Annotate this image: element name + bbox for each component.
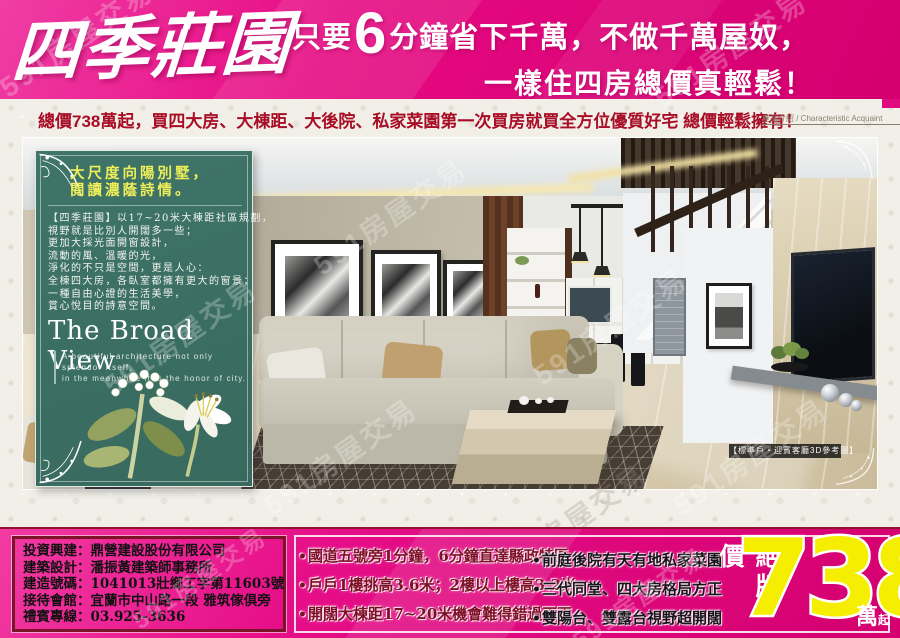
small-photo-frame xyxy=(706,283,752,349)
teacup xyxy=(547,397,554,403)
footer-band: 投資興建：鼎營建設股份有限公司 建築設計：潘振黃建築師事務所 建造號碼：1041… xyxy=(0,527,900,638)
company-line: 投資興建：鼎營建設股份有限公司 xyxy=(23,543,275,560)
company-line: 建造號碼：1041013壯鄉工字第11603號 xyxy=(23,576,275,593)
teacup xyxy=(535,398,542,404)
plant-bowl xyxy=(771,362,809,372)
project-title: 四季莊園 xyxy=(9,0,300,99)
body-line: 更加大採光面開窗設計， xyxy=(48,238,273,251)
body-line: 一種自由心證的生活美學， xyxy=(48,289,273,302)
pendant-lamp xyxy=(601,208,603,266)
body-line: 全棟四大房，各臥室都擁有更大的窗景； xyxy=(48,276,273,289)
flower-illustration xyxy=(56,369,236,481)
slogan-line2: 一樣住四房總價真輕鬆！ xyxy=(292,62,814,99)
sofa-pillow xyxy=(530,329,573,372)
unit-qi: 起 xyxy=(878,613,890,627)
big-number-6: 6 xyxy=(352,1,389,66)
body-line: 賞心悅目的詩意空間。 xyxy=(48,301,273,314)
bullet-icon: • xyxy=(298,549,307,565)
feature-item: •雙陽台、雙露台視野超開闊 xyxy=(532,604,722,633)
decor-sphere xyxy=(821,384,839,402)
panel-headline-line1: 大尺度向陽別墅， xyxy=(70,165,210,182)
photo-art xyxy=(715,293,743,339)
subheader-bar: 總價738萬起，買四大房、大棟距、大後院、私家菜園第一次買房就買全方位優質好宅 … xyxy=(0,99,900,136)
bullet-icon: • xyxy=(532,553,541,569)
company-info-box: 投資興建：鼎營建設股份有限公司 建築設計：潘振黃建築師事務所 建造號碼：1041… xyxy=(12,536,286,632)
subheader-text: 總價738萬起，買四大房、大棟距、大後院、私家菜園第一次買房就買全方位優質好宅 … xyxy=(38,107,802,132)
panel-divider xyxy=(48,205,242,206)
ad-page: 四季莊園 只要6分鐘省下千萬，不做千萬屋奴， 一樣住四房總價真輕鬆！ 總價738… xyxy=(0,0,900,638)
shelf-bottle xyxy=(535,284,540,298)
company-line: 接待會館：宜蘭市中山路一段 雅筑傢俱旁 xyxy=(23,593,275,610)
unit-wan: 萬 xyxy=(856,604,878,630)
corner-flourish-icon xyxy=(835,140,875,180)
body-line: 視野就是比別人開闊多一些； xyxy=(48,226,273,239)
bullet-icon: • xyxy=(298,607,307,623)
plant-leaf xyxy=(795,348,809,359)
panel-headline: 大尺度向陽別墅， 閱讀濃蔭詩情。 xyxy=(70,165,210,199)
shelf-plant xyxy=(515,256,529,265)
company-line: 建築設計：潘振黃建築師事務所 xyxy=(23,560,275,577)
coffee-table xyxy=(452,410,616,484)
body-line: 淨化的不只是空間，更是人心： xyxy=(48,263,273,276)
bullet-icon: • xyxy=(532,582,541,598)
pendant-lamp xyxy=(579,208,581,252)
slogan-line1: 只要6分鐘省下千萬，不做千萬屋奴， xyxy=(292,14,814,56)
phone-line: 禮賓專線：03.925-3636 xyxy=(23,609,275,626)
feature-item: •三代同堂、四大房格局方正 xyxy=(532,575,722,604)
bullet-icon: • xyxy=(298,578,307,594)
section-label: 產品介紹 / Characteristic Acquaint xyxy=(762,113,900,125)
photo-caption: 【標準戶‧迎賓客廳3D參考圖】 xyxy=(729,444,841,458)
teapot xyxy=(519,396,529,405)
slogan: 只要6分鐘省下千萬，不做千萬屋奴， 一樣住四房總價真輕鬆！ xyxy=(292,14,814,99)
hero-section: 【標準戶‧迎賓客廳3D參考圖】 大尺度向陽別墅， 閱讀濃蔭詩情。 xyxy=(0,136,900,527)
feature-panel: 大尺度向陽別墅， 閱讀濃蔭詩情。 【四季莊園】以17~20米大棟距社區規劃， 視… xyxy=(35,150,253,487)
price-unit: 萬起 xyxy=(856,599,890,631)
decor-sphere xyxy=(851,400,862,411)
feature-item: •前庭後院有天有地私家菜園 xyxy=(532,546,722,575)
corner-notch xyxy=(882,99,900,108)
body-line: 【四季莊園】以17~20米大棟距社區規劃， xyxy=(48,213,273,226)
masthead: 四季莊園 只要6分鐘省下千萬，不做千萬屋奴， 一樣住四房總價真輕鬆！ xyxy=(0,0,900,99)
bullet-icon: • xyxy=(532,611,541,627)
panel-body-text: 【四季莊園】以17~20米大棟距社區規劃， 視野就是比別人開闊多一些； 更加大採… xyxy=(48,213,273,314)
cushion-seam xyxy=(505,320,507,382)
cushion-seam xyxy=(341,320,343,382)
panel-headline-line2: 閱讀濃蔭詩情。 xyxy=(70,182,210,199)
gray-door xyxy=(653,278,686,356)
body-line: 流動的風、溫暖的光， xyxy=(48,251,273,264)
sofa-pillow xyxy=(567,338,597,374)
feature-list-right: •前庭後院有天有地私家菜園 •三代同堂、四大房格局方正 •雙陽台、雙露台視野超開… xyxy=(532,546,722,633)
